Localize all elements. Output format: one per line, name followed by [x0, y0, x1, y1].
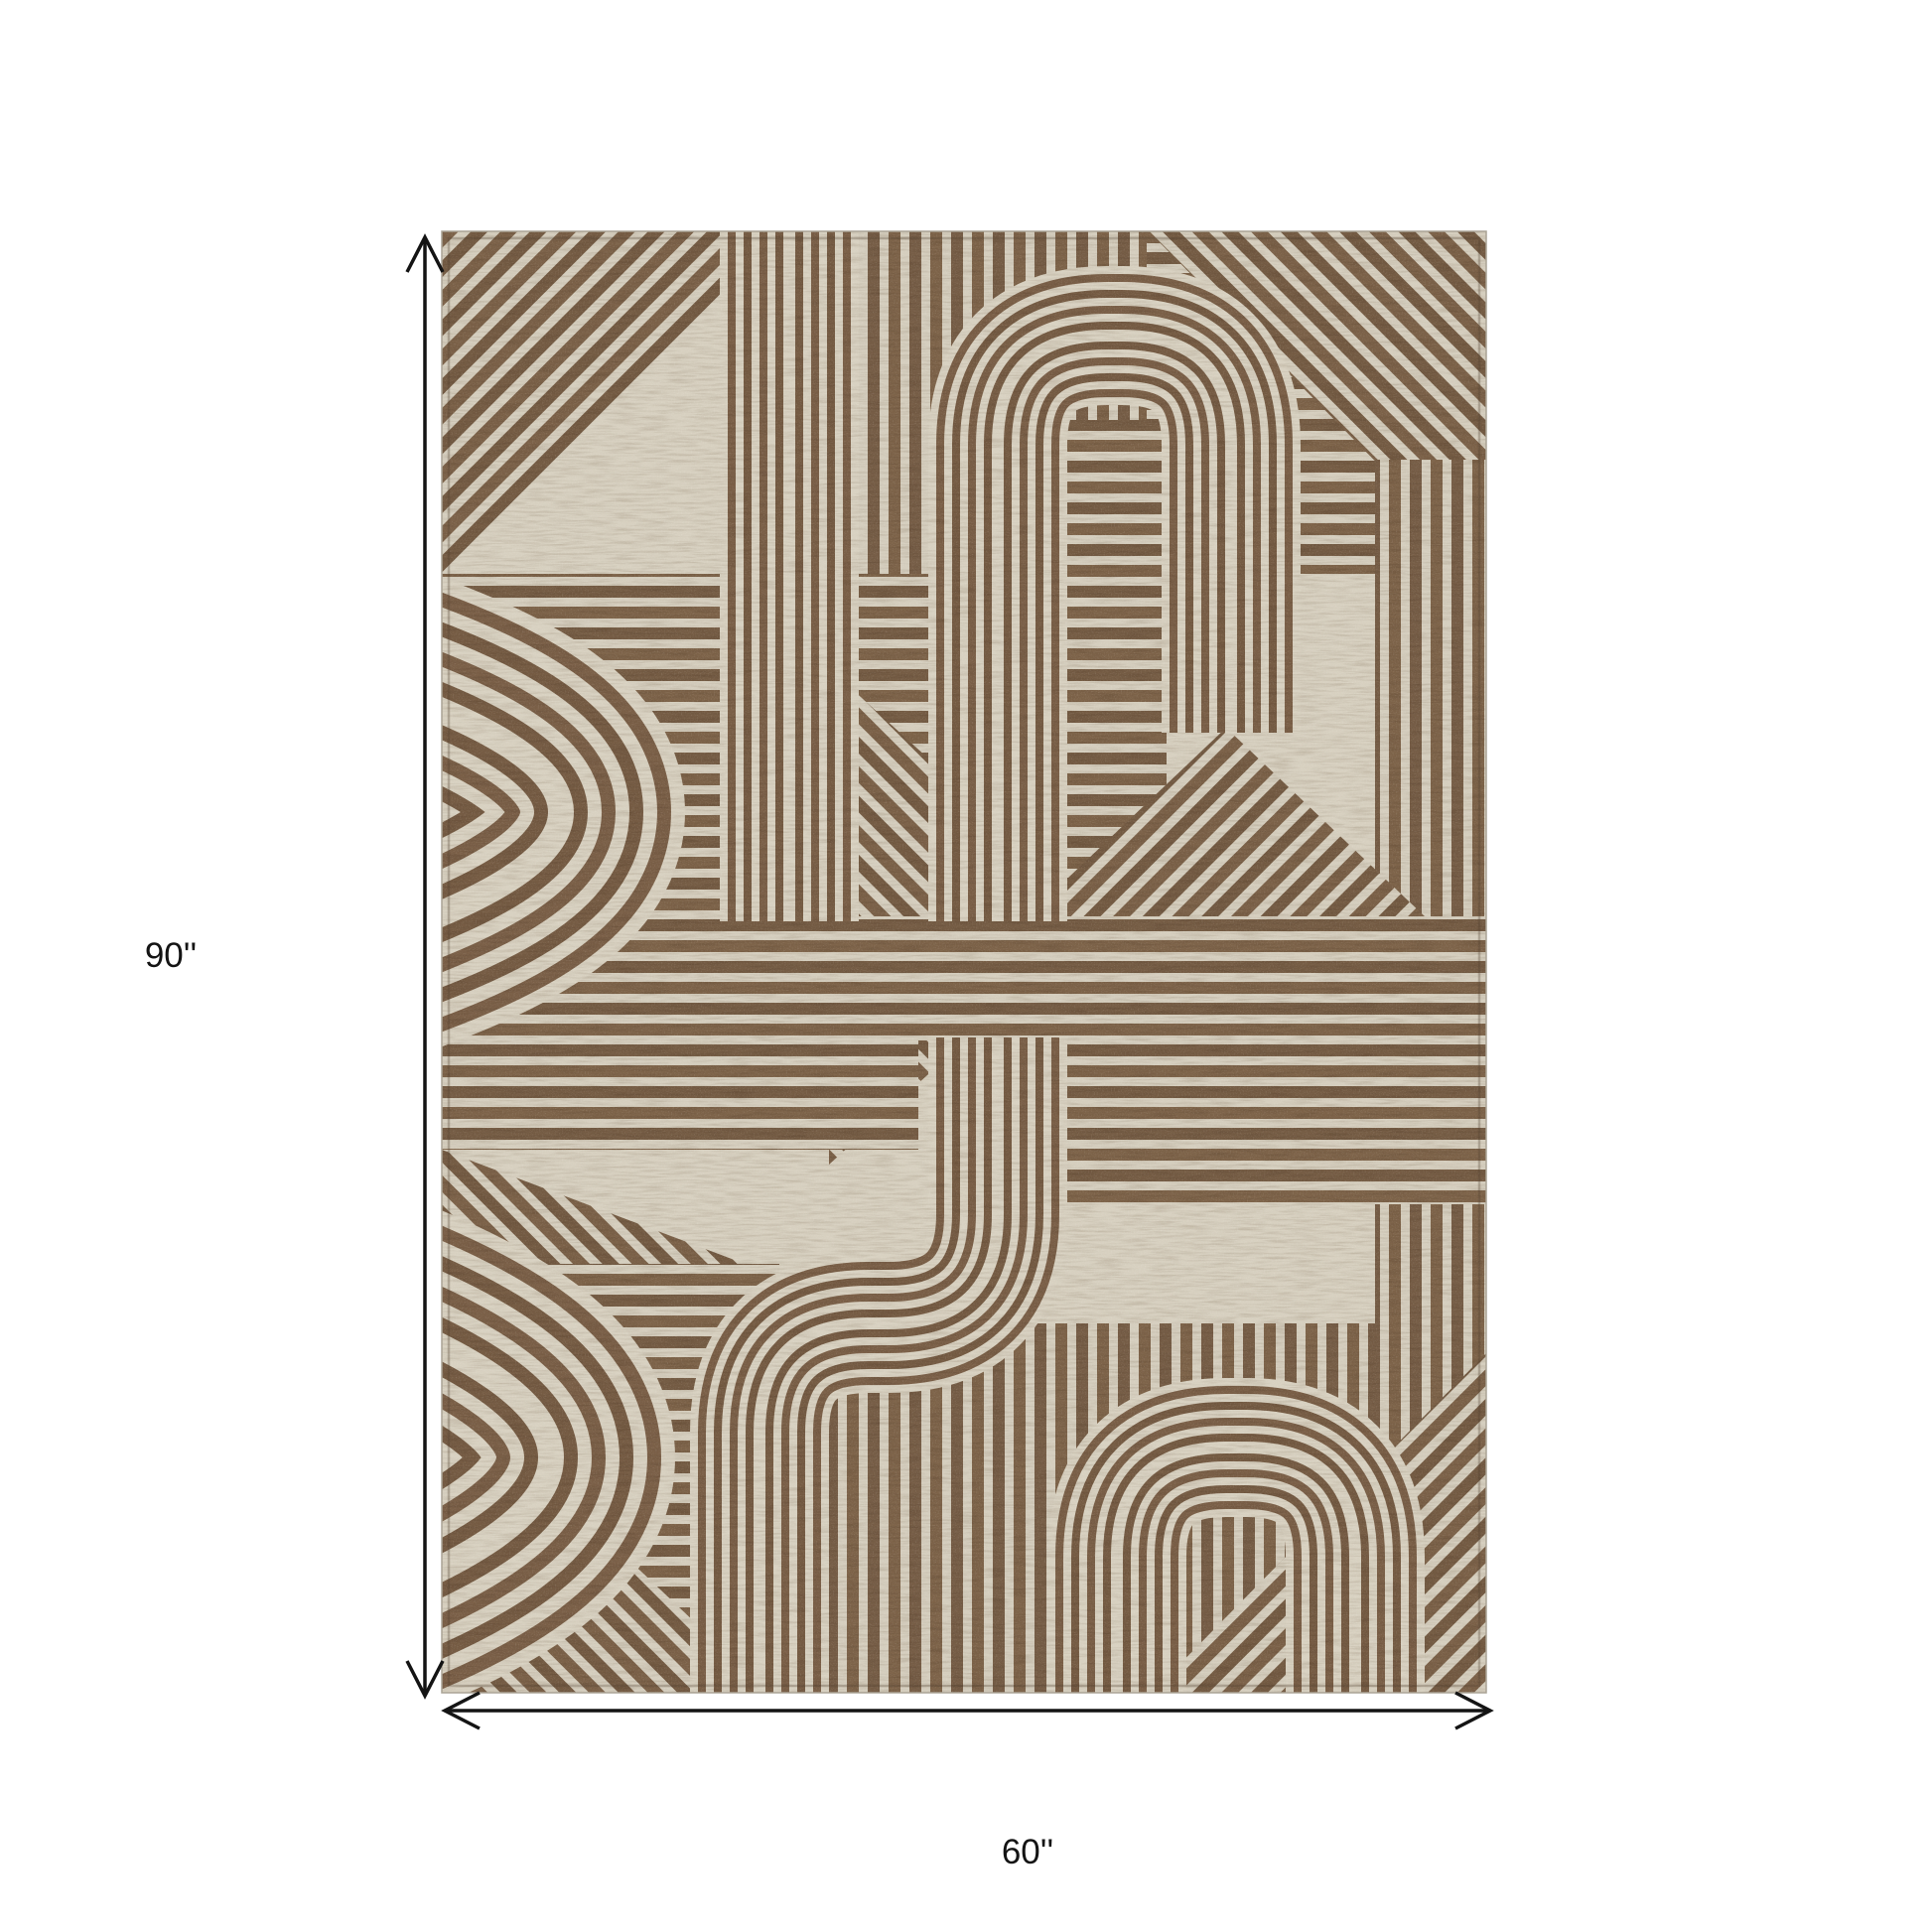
height-dimension-arrow: [407, 237, 443, 1696]
height-label: 90'': [145, 936, 197, 975]
rug-image: [352, 192, 1486, 1732]
product-image-page: 90'' 60'': [0, 0, 1932, 1932]
rug-texture-light: [442, 231, 1486, 1693]
dimension-diagram: 90'' 60'': [0, 0, 1932, 1932]
width-label: 60'': [1002, 1833, 1053, 1871]
width-dimension-arrow: [445, 1693, 1490, 1728]
